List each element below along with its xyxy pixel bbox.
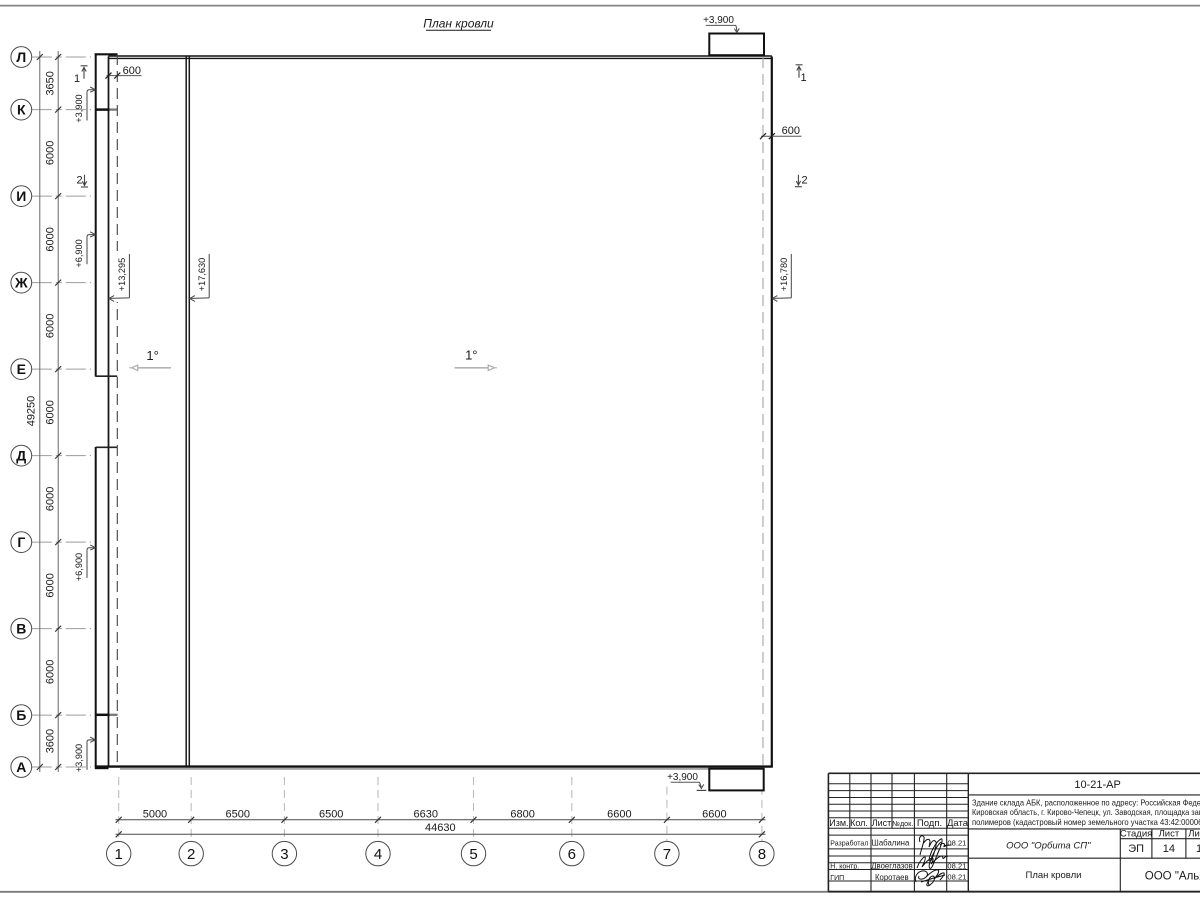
svg-text:3: 3 — [280, 846, 288, 863]
svg-text:Коротаев: Коротаев — [875, 873, 909, 882]
svg-text:+13,295: +13,295 — [117, 258, 127, 291]
svg-text:Л: Л — [16, 49, 26, 65]
svg-text:6000: 6000 — [45, 573, 57, 597]
svg-text:Н. контр.: Н. контр. — [830, 864, 859, 871]
svg-text:+17,630: +17,630 — [197, 258, 207, 291]
svg-text:1: 1 — [74, 73, 80, 85]
svg-text:Изм.: Изм. — [829, 818, 848, 828]
svg-text:Листов: Листов — [1188, 829, 1200, 840]
svg-text:2: 2 — [187, 846, 195, 863]
svg-text:10-21-АР: 10-21-АР — [1074, 779, 1120, 791]
svg-text:К: К — [17, 102, 26, 118]
svg-text:6000: 6000 — [45, 314, 57, 338]
svg-text:08.21: 08.21 — [947, 862, 966, 871]
svg-text:Лист: Лист — [1159, 829, 1180, 840]
svg-text:3600: 3600 — [45, 729, 57, 753]
svg-text:полимеров (кадастровый номер з: полимеров (кадастровый номер земельного … — [972, 817, 1200, 827]
svg-text:08.21: 08.21 — [947, 839, 966, 848]
svg-text:Подп.: Подп. — [917, 818, 942, 829]
svg-text:3650: 3650 — [45, 71, 57, 95]
svg-text:Кировская область, г. Кирово-Ч: Кировская область, г. Кирово-Чепецк, ул.… — [972, 807, 1200, 817]
svg-text:1°: 1° — [465, 347, 477, 362]
svg-text:Двоеглазов: Двоеглазов — [871, 862, 912, 871]
svg-text:4: 4 — [374, 846, 382, 863]
svg-text:Лист: Лист — [872, 818, 892, 828]
svg-text:6800: 6800 — [510, 809, 534, 821]
svg-text:+6,900: +6,900 — [74, 239, 84, 267]
svg-text:6000: 6000 — [45, 400, 57, 424]
svg-text:Б: Б — [16, 707, 26, 723]
svg-text:2: 2 — [76, 175, 82, 187]
svg-text:Шабалина: Шабалина — [872, 839, 910, 848]
svg-text:+3,900: +3,900 — [703, 15, 734, 26]
svg-text:ЭП: ЭП — [1128, 843, 1144, 855]
svg-text:+3,900: +3,900 — [667, 772, 698, 783]
svg-text:+3,900: +3,900 — [74, 94, 84, 122]
svg-text:600: 600 — [123, 65, 141, 77]
svg-text:6000: 6000 — [45, 660, 57, 684]
svg-text:6600: 6600 — [702, 809, 726, 821]
svg-text:5000: 5000 — [143, 809, 167, 821]
svg-text:1: 1 — [115, 846, 123, 863]
svg-text:8: 8 — [758, 846, 766, 863]
svg-text:49250: 49250 — [26, 396, 38, 427]
svg-text:6: 6 — [568, 846, 576, 863]
svg-text:В: В — [16, 621, 26, 637]
svg-text:Кол.: Кол. — [850, 818, 868, 828]
svg-text:7: 7 — [663, 846, 671, 863]
svg-text:6000: 6000 — [45, 487, 57, 511]
svg-text:6630: 6630 — [414, 809, 438, 821]
svg-text:6500: 6500 — [319, 809, 343, 821]
svg-text:6600: 6600 — [607, 809, 631, 821]
svg-text:ООО "Альянс: ООО "Альянс — [1145, 871, 1200, 883]
svg-text:6500: 6500 — [226, 809, 250, 821]
svg-text:И: И — [16, 188, 26, 204]
svg-text:План кровли: План кровли — [423, 17, 494, 31]
svg-text:Дата: Дата — [947, 818, 969, 829]
svg-text:08.21: 08.21 — [947, 873, 966, 882]
svg-text:1: 1 — [800, 72, 806, 84]
svg-text:14: 14 — [1163, 843, 1175, 855]
svg-text:6000: 6000 — [45, 227, 57, 251]
svg-text:+6,900: +6,900 — [74, 553, 84, 581]
svg-text:Ж: Ж — [14, 275, 28, 291]
svg-text:14: 14 — [1196, 843, 1200, 855]
svg-text:Д: Д — [16, 448, 26, 464]
svg-text:600: 600 — [782, 125, 800, 137]
svg-text:44630: 44630 — [425, 822, 456, 834]
svg-text:Е: Е — [17, 361, 26, 377]
svg-text:2: 2 — [801, 175, 807, 187]
svg-text:ГИП: ГИП — [830, 875, 844, 882]
svg-text:План кровли: План кровли — [1026, 870, 1082, 881]
svg-text:+16,780: +16,780 — [779, 258, 789, 291]
svg-text:ООО "Орбита СП": ООО "Орбита СП" — [1006, 840, 1091, 851]
svg-text:Разработал: Разработал — [830, 839, 868, 847]
svg-text:6000: 6000 — [45, 141, 57, 165]
svg-text:Г: Г — [17, 534, 25, 550]
svg-text:5: 5 — [469, 846, 477, 863]
svg-text:А: А — [16, 759, 26, 775]
svg-text:+3,900: +3,900 — [74, 744, 84, 772]
svg-text:Стадия: Стадия — [1120, 829, 1152, 840]
svg-text:1°: 1° — [146, 348, 158, 363]
svg-text:№док.: №док. — [892, 819, 913, 828]
